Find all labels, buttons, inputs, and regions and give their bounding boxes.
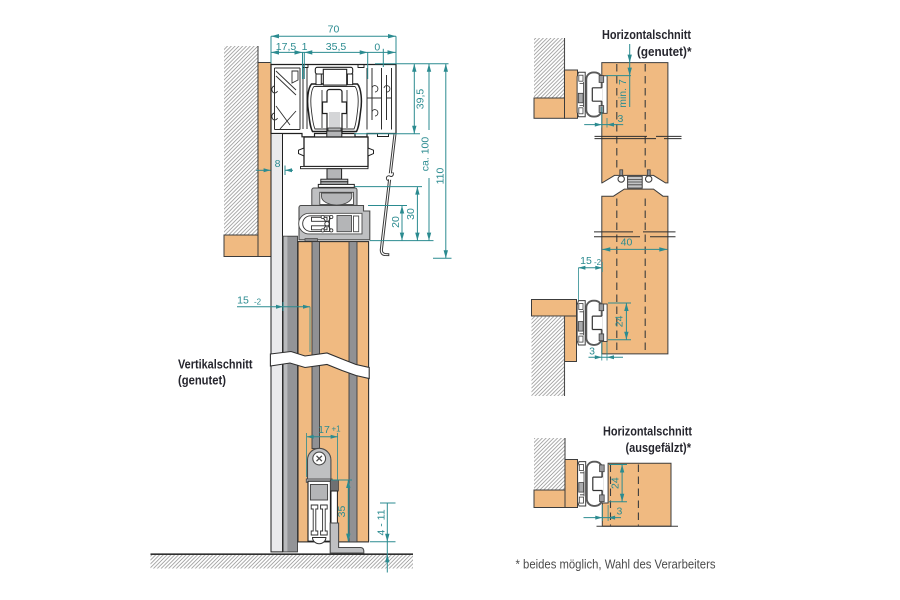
svg-text:15: 15 <box>237 294 249 306</box>
svg-text:3: 3 <box>589 346 595 358</box>
svg-text:(genutet)*: (genutet)* <box>637 44 692 59</box>
svg-text:+1: +1 <box>332 425 342 434</box>
svg-text:-2: -2 <box>254 298 262 307</box>
svg-text:1: 1 <box>302 41 308 53</box>
svg-text:* beides möglich, Wahl des Ver: * beides möglich, Wahl des Verarbeiters <box>516 557 716 572</box>
svg-text:110: 110 <box>435 167 447 184</box>
svg-text:Horizontalschnitt: Horizontalschnitt <box>602 27 692 42</box>
svg-text:3: 3 <box>618 113 624 125</box>
svg-text:70: 70 <box>328 24 340 36</box>
svg-text:24: 24 <box>614 315 626 327</box>
svg-text:35: 35 <box>336 506 348 518</box>
svg-text:8: 8 <box>275 158 281 170</box>
svg-text:30: 30 <box>405 208 417 220</box>
svg-text:3: 3 <box>617 505 623 517</box>
svg-text:39,5: 39,5 <box>415 89 427 110</box>
svg-text:15: 15 <box>580 255 592 267</box>
svg-text:24: 24 <box>609 477 621 489</box>
svg-text:-2: -2 <box>594 258 602 267</box>
svg-text:ca. 100: ca. 100 <box>420 137 432 172</box>
svg-text:20: 20 <box>390 216 402 228</box>
svg-text:Vertikalschnitt: Vertikalschnitt <box>178 357 253 372</box>
svg-text:4 - 11: 4 - 11 <box>375 509 387 535</box>
svg-text:0: 0 <box>374 41 380 53</box>
svg-text:(ausgefälzt)*: (ausgefälzt)* <box>626 440 692 455</box>
svg-text:(genutet): (genutet) <box>178 373 226 388</box>
svg-text:40: 40 <box>621 237 633 249</box>
svg-text:min. 7: min. 7 <box>617 79 629 108</box>
svg-text:Horizontalschnitt: Horizontalschnitt <box>603 424 693 439</box>
svg-text:17: 17 <box>318 424 330 436</box>
svg-text:35,5: 35,5 <box>326 41 347 53</box>
